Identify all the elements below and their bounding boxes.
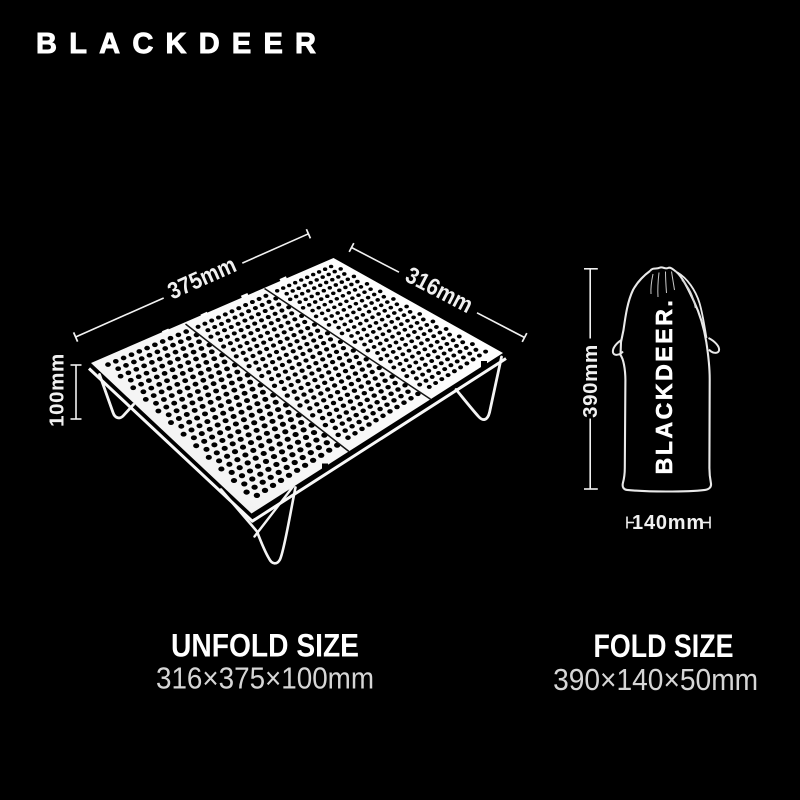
svg-text:390mm: 390mm bbox=[579, 344, 602, 418]
svg-text:BLACKDEER: BLACKDEER bbox=[36, 28, 328, 60]
svg-text:390×140×50mm: 390×140×50mm bbox=[553, 663, 758, 697]
svg-text:140mm: 140mm bbox=[632, 512, 705, 534]
svg-text:BLACKDEER.: BLACKDEER. bbox=[651, 298, 677, 475]
svg-text:316×375×100mm: 316×375×100mm bbox=[156, 662, 374, 696]
svg-text:100mm: 100mm bbox=[46, 353, 69, 427]
svg-text:UNFOLD SIZE: UNFOLD SIZE bbox=[171, 628, 359, 664]
svg-text:FOLD SIZE: FOLD SIZE bbox=[594, 628, 734, 664]
